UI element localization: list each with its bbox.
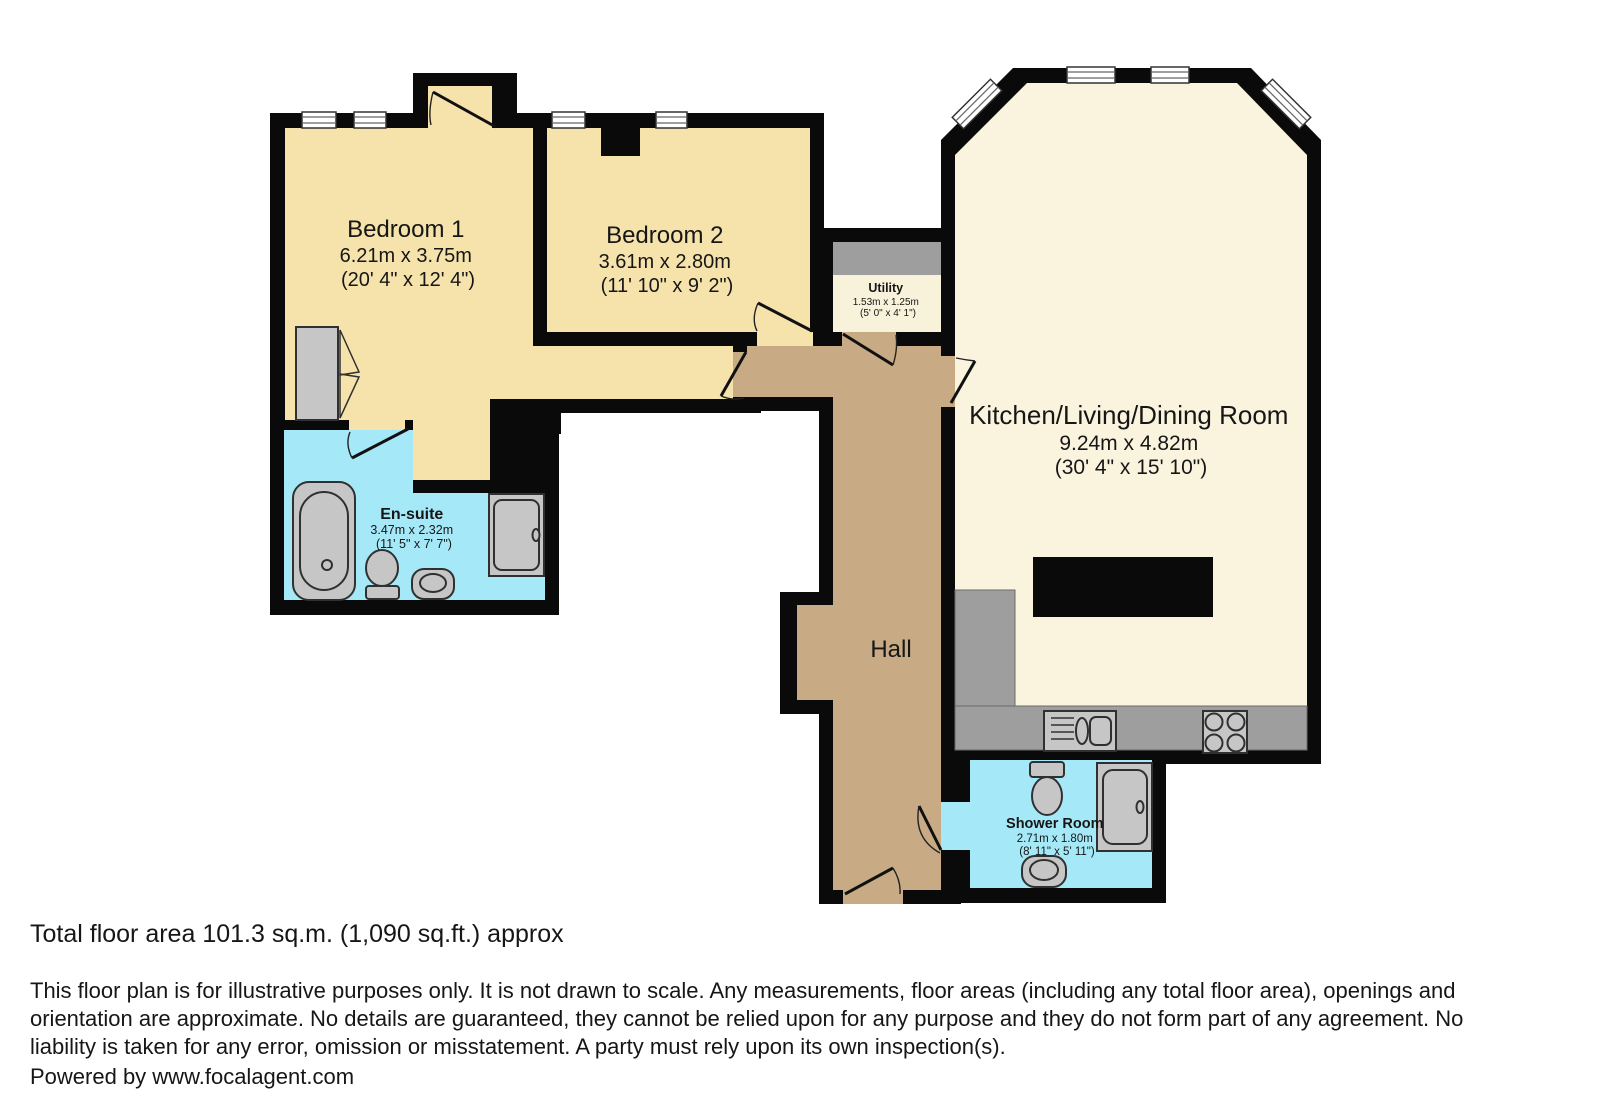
kitchen-bay-window-2 <box>1151 67 1189 83</box>
bedroom1-label: Bedroom 1 6.21m x 3.75m (20' 4" x 12' 4"… <box>340 216 477 291</box>
shower-enclosure <box>1097 763 1152 851</box>
ensuite-toilet <box>366 550 399 599</box>
hall-floor <box>747 346 941 890</box>
bedroom2-chimney <box>601 128 640 156</box>
powered-by-text: Powered by www.focalagent.com <box>30 1063 354 1091</box>
bedroom1-window-1 <box>302 112 336 128</box>
ensuite-shower <box>489 494 544 576</box>
ensuite-label: En-suite 3.47m x 2.32m (11' 5" x 7' 7") <box>370 506 457 551</box>
disclaimer-text: This floor plan is for illustrative purp… <box>30 977 1525 1061</box>
bedroom1-window-2 <box>354 112 386 128</box>
ensuite-basin <box>412 569 454 599</box>
shower-room-label: Shower Room 2.71m x 1.80m (8' 11" x 5' 1… <box>1006 815 1108 858</box>
shower-basin <box>1022 856 1066 887</box>
kitchen-sink <box>1044 711 1116 751</box>
bathtub <box>293 482 355 600</box>
bedroom2-label: Bedroom 2 3.61m x 2.80m (11' 10" x 9' 2"… <box>599 222 736 297</box>
utility-appliance <box>833 242 941 275</box>
bedroom2-window-2 <box>656 112 687 128</box>
hall-label: Hall <box>870 636 911 663</box>
bedroom2-window-1 <box>552 112 585 128</box>
floorplan-drawing: Bedroom 1 6.21m x 3.75m (20' 4" x 12' 4"… <box>0 0 1600 910</box>
total-floor-area-text: Total floor area 101.3 sq.m. (1,090 sq.f… <box>30 920 564 949</box>
shower-toilet <box>1030 762 1064 815</box>
kitchen-counter-bottom <box>955 706 1307 750</box>
floorplan-page: Bedroom 1 6.21m x 3.75m (20' 4" x 12' 4"… <box>0 0 1600 1119</box>
kitchen-bay-window-1 <box>1067 67 1115 83</box>
kitchen-fireplace <box>1033 557 1213 617</box>
kitchen-hob <box>1203 711 1247 753</box>
